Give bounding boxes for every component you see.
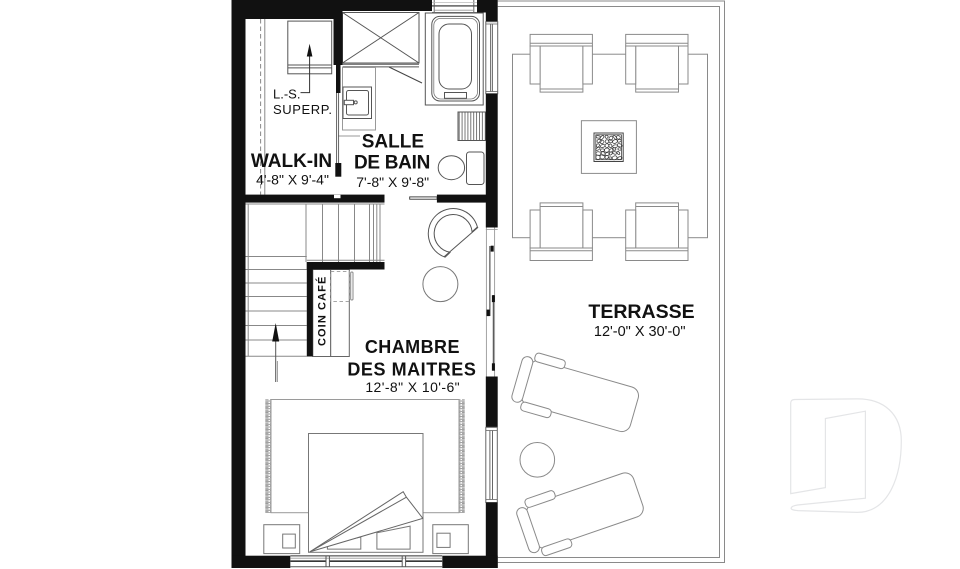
svg-text:12'-8" X 10'-6": 12'-8" X 10'-6" (365, 379, 460, 395)
svg-text:SUPERP.: SUPERP. (273, 102, 333, 117)
svg-text:SALLE: SALLE (362, 131, 424, 152)
svg-text:CHAMBRE: CHAMBRE (365, 337, 460, 357)
svg-text:DES MAITRES: DES MAITRES (347, 359, 476, 379)
svg-text:4'-8" X 9'-4": 4'-8" X 9'-4" (256, 171, 329, 187)
svg-text:WALK-IN: WALK-IN (251, 151, 332, 172)
svg-text:12'-0" X 30'-0": 12'-0" X 30'-0" (594, 324, 686, 340)
svg-text:TERRASSE: TERRASSE (588, 301, 694, 323)
svg-text:7'-8" X 9'-8": 7'-8" X 9'-8" (356, 174, 429, 190)
svg-text:COIN CAFÉ: COIN CAFÉ (316, 276, 329, 346)
svg-text:L.-S.: L.-S. (273, 86, 300, 101)
svg-text:DE BAIN: DE BAIN (354, 152, 430, 173)
